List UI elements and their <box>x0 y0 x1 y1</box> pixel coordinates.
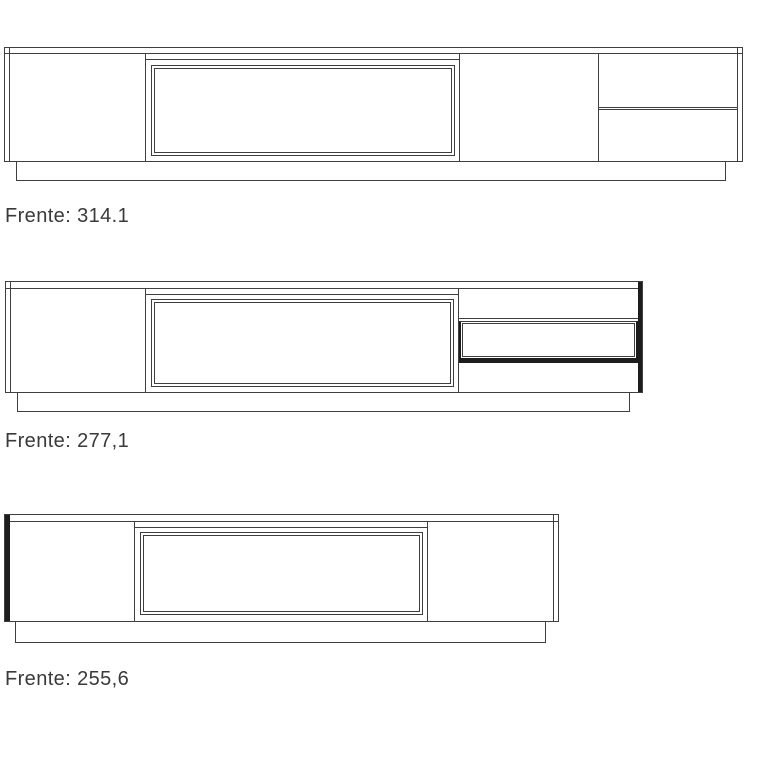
plinth <box>16 162 726 181</box>
niche-flap-inner-line <box>154 68 452 153</box>
niche-flap-panel <box>140 532 423 615</box>
niche-flap-panel <box>151 299 454 387</box>
frente-label: Frente: 255,6 <box>5 668 129 691</box>
right-door-panel <box>428 522 554 621</box>
left-door-panel <box>10 289 146 392</box>
drawer-middle-inner-line <box>462 323 635 357</box>
cabinet-drawing-314: Frente: 314.1 <box>0 47 770 237</box>
cabinet-drawing-255: Frente: 255,6 <box>0 514 770 704</box>
frente-label: Frente: 277,1 <box>5 430 129 453</box>
cabinet-drawing-277: Frente: 277,1 <box>0 281 770 466</box>
cabinet-top-panel <box>6 282 642 289</box>
tv-niche <box>146 54 460 161</box>
drawer-divider-line <box>599 107 738 110</box>
tv-niche <box>146 289 459 392</box>
cabinet-body <box>4 47 743 162</box>
frente-label: Frente: 314.1 <box>5 205 129 228</box>
center-door-panel <box>460 54 599 161</box>
left-door-panel <box>9 54 146 161</box>
drawer-top <box>459 289 638 319</box>
drawer-stack <box>459 289 638 392</box>
niche-flap-inner-line <box>143 535 420 612</box>
drawer-middle-highlighted <box>459 321 638 363</box>
cabinet-top-panel <box>5 515 558 522</box>
left-door-panel <box>10 522 135 621</box>
plinth <box>17 393 630 412</box>
cabinet-body <box>5 281 643 393</box>
tv-niche <box>135 522 428 621</box>
niche-top-line <box>135 527 427 528</box>
drawer-bottom <box>459 363 638 392</box>
right-side-panel-thick <box>638 282 642 392</box>
niche-top-line <box>146 294 458 295</box>
drawer-stack <box>599 54 738 161</box>
niche-flap-inner-line <box>154 302 451 384</box>
cabinet-body <box>4 514 559 622</box>
niche-top-line <box>146 59 459 60</box>
niche-flap-panel <box>151 65 455 156</box>
plinth <box>15 622 546 643</box>
furniture-dimension-diagram: Frente: 314.1 Frente: 277,1 <box>0 0 770 770</box>
